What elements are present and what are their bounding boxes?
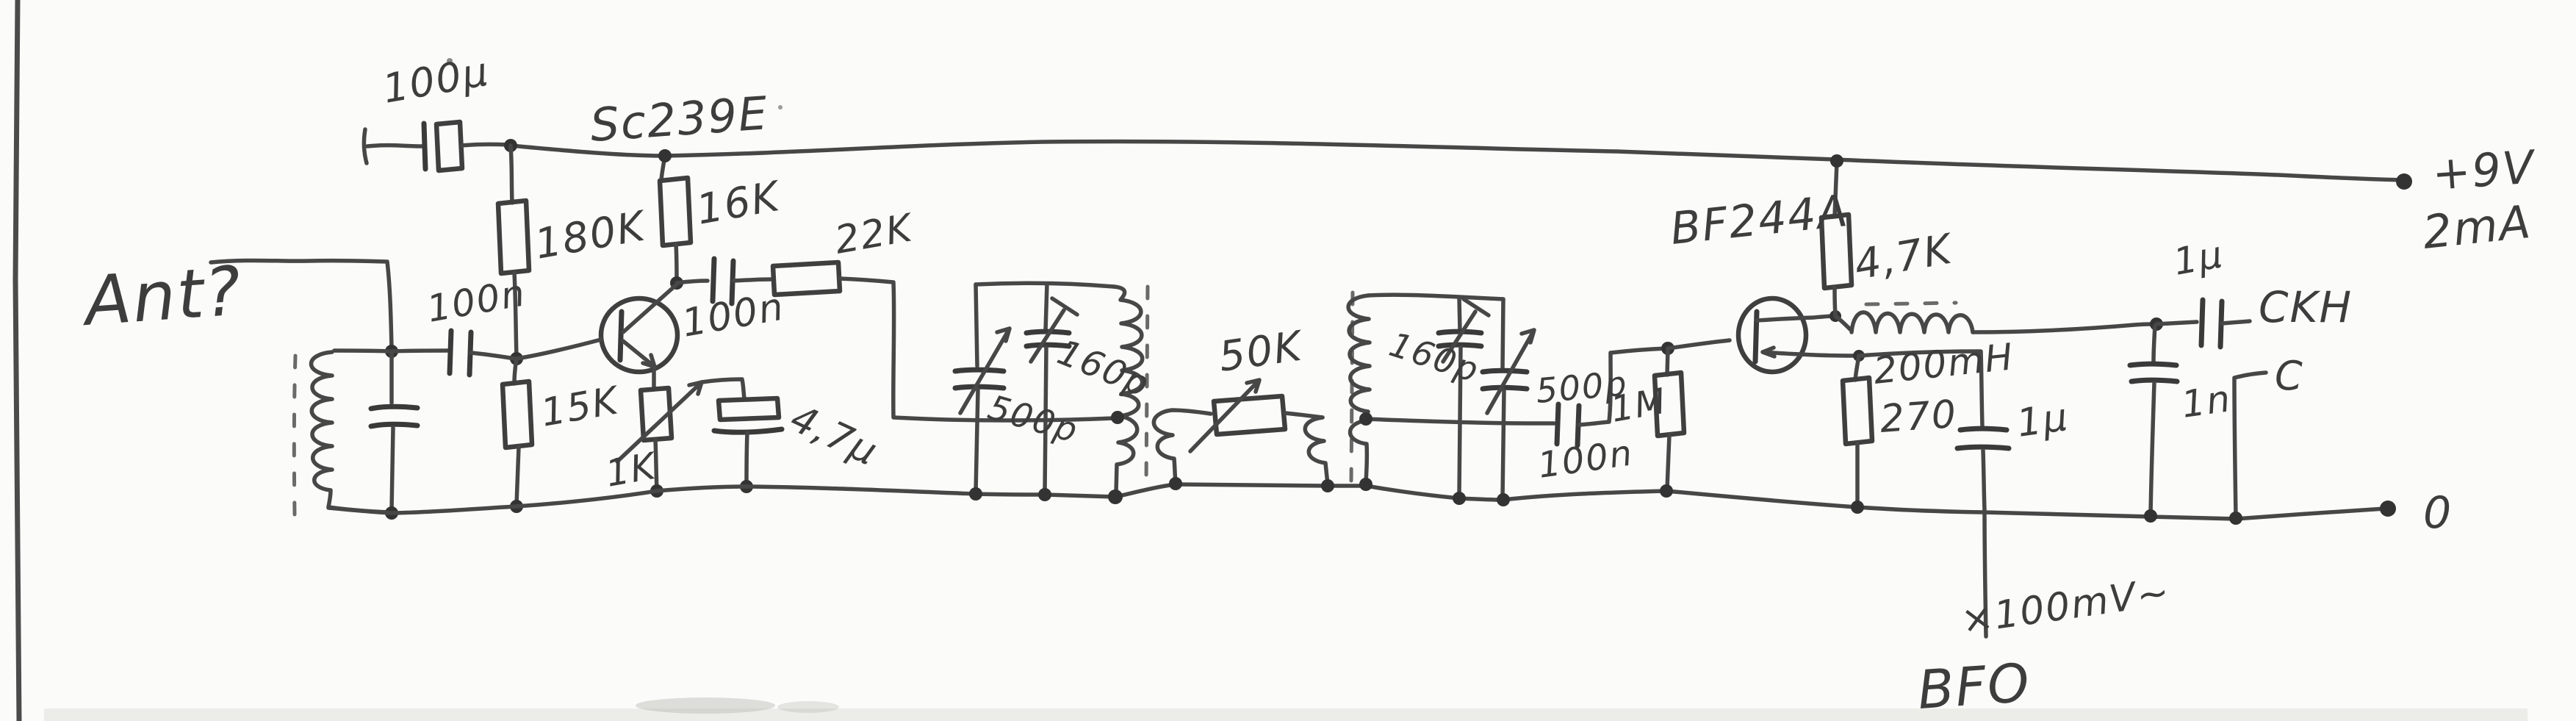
pencil-speck — [778, 105, 782, 110]
cap-1u-bfo-label: 1μ — [2014, 395, 2071, 446]
drain-lead — [1757, 316, 1835, 320]
schematic-canvas: Ant? 100μ Sc239E 180K 16K 100n 22K 100n … — [0, 0, 2576, 721]
cap-plate — [1960, 428, 2007, 430]
potentiometer-50k — [1190, 380, 1328, 484]
cap-plate — [436, 122, 462, 171]
input-tank-coil — [294, 351, 392, 514]
input-tank-capacitor — [371, 351, 417, 510]
junction-dot — [1169, 477, 1182, 490]
resistor-270-label: 270 — [1879, 392, 1959, 442]
junction-dot — [1453, 492, 1466, 505]
cap-100n-collector-label: 100n — [679, 284, 788, 345]
transistor-circle — [601, 298, 677, 372]
coupling-loop — [1305, 417, 1328, 484]
scan-left-border — [15, 0, 19, 721]
coil-winding — [1116, 416, 1137, 492]
core-dash — [1351, 293, 1353, 484]
junction-dot — [1830, 154, 1843, 168]
junction-dot — [2380, 501, 2396, 517]
output-ckh-label: CKH — [2259, 282, 2353, 332]
junction-dot — [1359, 412, 1372, 426]
resistor-body — [498, 201, 529, 273]
bfo-label: BFO — [1915, 651, 2032, 721]
rail-current-label: 2mA — [2420, 195, 2534, 259]
transistor-circle — [1738, 298, 1806, 372]
capacitor-100n-base — [392, 331, 515, 375]
rail-pos-label: +9V — [2431, 140, 2539, 201]
resistor-180k — [498, 146, 529, 357]
junction-dot — [2396, 173, 2412, 190]
junction-dot — [1321, 479, 1334, 492]
cap-100n-base-label: 100n — [424, 271, 529, 331]
tank1 — [955, 283, 1211, 492]
cap-plate — [955, 370, 1004, 371]
junction-dot — [1851, 501, 1864, 514]
transistor-q1 — [517, 284, 677, 390]
base-wire — [517, 340, 601, 359]
junction-dot — [969, 487, 982, 501]
capacitor-100u-label: 100μ — [379, 49, 492, 112]
cap-plate — [1957, 447, 2009, 448]
resistor-4k7-label: 4,7K — [1851, 225, 1957, 290]
junction-dot — [1497, 493, 1510, 506]
supply-rail-wire — [511, 141, 2401, 180]
scan-bottom-band — [44, 709, 2528, 721]
cap-1u-out-label: 1μ — [2170, 233, 2227, 284]
coil-winding — [1348, 295, 1370, 417]
cap-plate — [1557, 404, 1558, 444]
coil-winding — [1852, 312, 1973, 332]
resistor-body — [1843, 378, 1872, 444]
coupling-loop — [1154, 410, 1211, 482]
cap-plate — [371, 406, 417, 409]
output-c-label: C — [2275, 353, 2304, 399]
junction-dot — [1111, 411, 1124, 424]
cap-100n-gate-label: 100n — [1536, 432, 1636, 487]
resistor-22k-label: 22K — [832, 206, 918, 263]
cap-1n-label: 1n — [2179, 377, 2234, 426]
scanned-schematic-page: Ant? 100μ Sc239E 180K 16K 100n 22K 100n … — [0, 0, 2576, 721]
ferrite-core-dash — [294, 356, 295, 514]
junction-dot — [2144, 509, 2157, 523]
resistor-body — [773, 262, 840, 295]
gate-wire — [1668, 340, 1730, 348]
pot-1k-label: 1K — [602, 444, 661, 495]
inductor-200mh — [1835, 303, 2155, 332]
junction-dot — [1038, 488, 1051, 501]
cap-500p-1-label: 500p — [984, 387, 1083, 451]
cap-plate — [1483, 370, 1527, 372]
cap-plate — [719, 398, 779, 420]
resistor-16k-label: 16K — [693, 173, 785, 234]
junction-dot — [658, 149, 672, 162]
variable-cap-500p-2 — [1483, 299, 1534, 498]
capacitor-100u — [364, 122, 508, 171]
pot-50k-label: 50K — [1216, 322, 1307, 381]
rail-gnd-label: 0 — [2423, 487, 2453, 539]
antenna-label: Ant? — [79, 251, 245, 341]
resistor-15k — [503, 359, 532, 504]
cap-plate — [2201, 300, 2203, 345]
trimmer-cap-160p-2 — [1439, 297, 1489, 497]
output-c-wire — [2234, 373, 2266, 517]
resistor-body — [503, 381, 532, 448]
resistor-16k — [660, 156, 691, 281]
resistor-180k-label: 180K — [531, 202, 651, 269]
junction-dot — [1108, 489, 1123, 504]
core-dash — [1866, 303, 1956, 304]
resistor-15k-label: 15K — [538, 379, 624, 436]
cap-plate — [2130, 364, 2176, 365]
wiper-arrow — [1190, 380, 1259, 451]
cap-plate — [450, 331, 451, 373]
base-bar — [620, 312, 622, 360]
cap-plate — [713, 259, 714, 301]
resistor-270 — [1843, 356, 1872, 506]
capacitor-4u7 — [714, 398, 782, 485]
capacitor-1u-out — [2156, 300, 2250, 347]
tank2 — [1348, 293, 1554, 498]
resistor-body — [660, 178, 691, 245]
trimmer-cap-160p-1 — [1026, 284, 1077, 492]
resistor-1m-label: 1M — [1608, 380, 1670, 430]
cap-plate — [424, 123, 425, 169]
cap-plate — [371, 424, 417, 426]
junction-dot — [1359, 478, 1372, 491]
inductor-200mh-label: 200mH — [1871, 335, 2016, 392]
bfo-level-label: ×100mV~ — [1958, 570, 2173, 643]
scan-smudge — [777, 701, 839, 713]
junction-dot — [2229, 512, 2242, 525]
transistor-q2 — [1738, 298, 1859, 372]
scan-smudge — [636, 697, 775, 714]
emitter-lead — [623, 341, 655, 390]
junction-dot — [1660, 484, 1673, 498]
cap-160p-1-label: 160p — [1052, 331, 1156, 406]
cap-4u7-label: 4,7μ — [784, 396, 885, 475]
coil-winding — [312, 352, 391, 512]
capacitor-1n — [2130, 326, 2177, 514]
source-lead — [1763, 348, 1859, 356]
labels-layer: Ant? 100μ Sc239E 180K 16K 100n 22K 100n … — [79, 49, 2539, 721]
q1-label: Sc239E — [589, 86, 770, 152]
